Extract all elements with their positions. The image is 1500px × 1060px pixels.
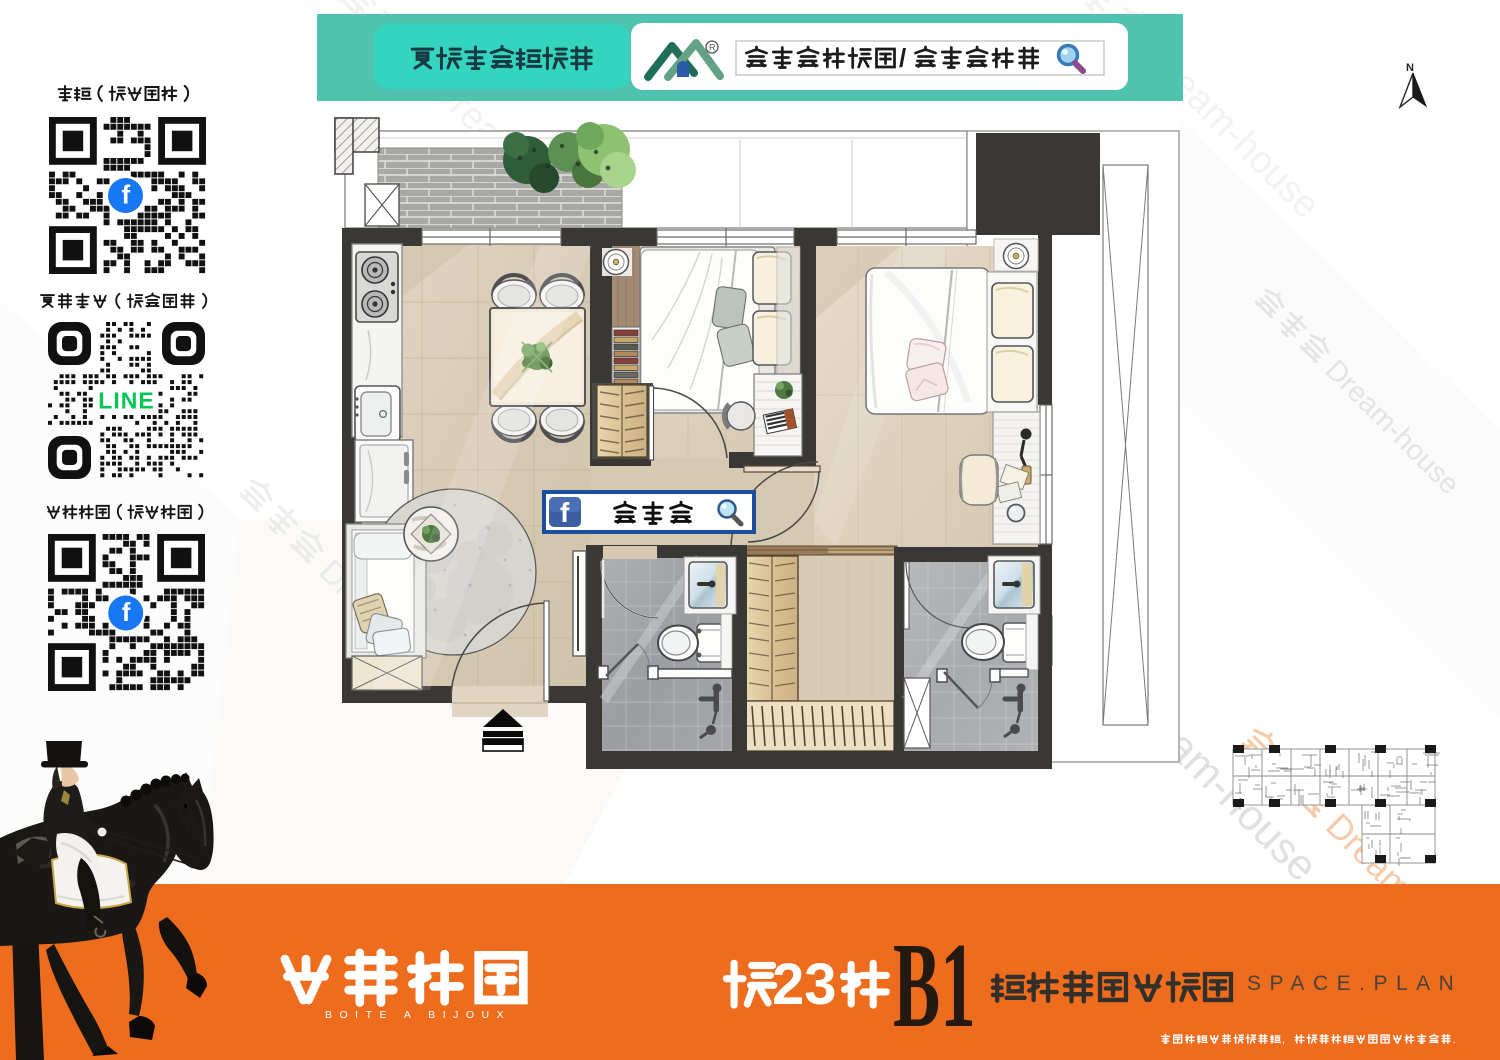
svg-text:23: 23 [772, 952, 837, 1017]
svg-text:B1: B1 [893, 917, 976, 1053]
svg-text:SPACE.PLAN: SPACE.PLAN [1247, 972, 1462, 995]
svg-text:N: N [1406, 62, 1414, 74]
svg-text:BOITE A BIJOUX: BOITE A BIJOUX [325, 1009, 511, 1021]
svg-text:f: f [560, 497, 570, 528]
svg-text:R: R [709, 43, 716, 53]
svg-text:LINE: LINE [98, 388, 154, 414]
svg-text:f: f [122, 597, 131, 627]
svg-text:.: . [1453, 1034, 1456, 1046]
svg-text:,: , [1282, 1034, 1285, 1046]
svg-text:f: f [122, 180, 131, 210]
svg-text:/: / [899, 43, 906, 73]
